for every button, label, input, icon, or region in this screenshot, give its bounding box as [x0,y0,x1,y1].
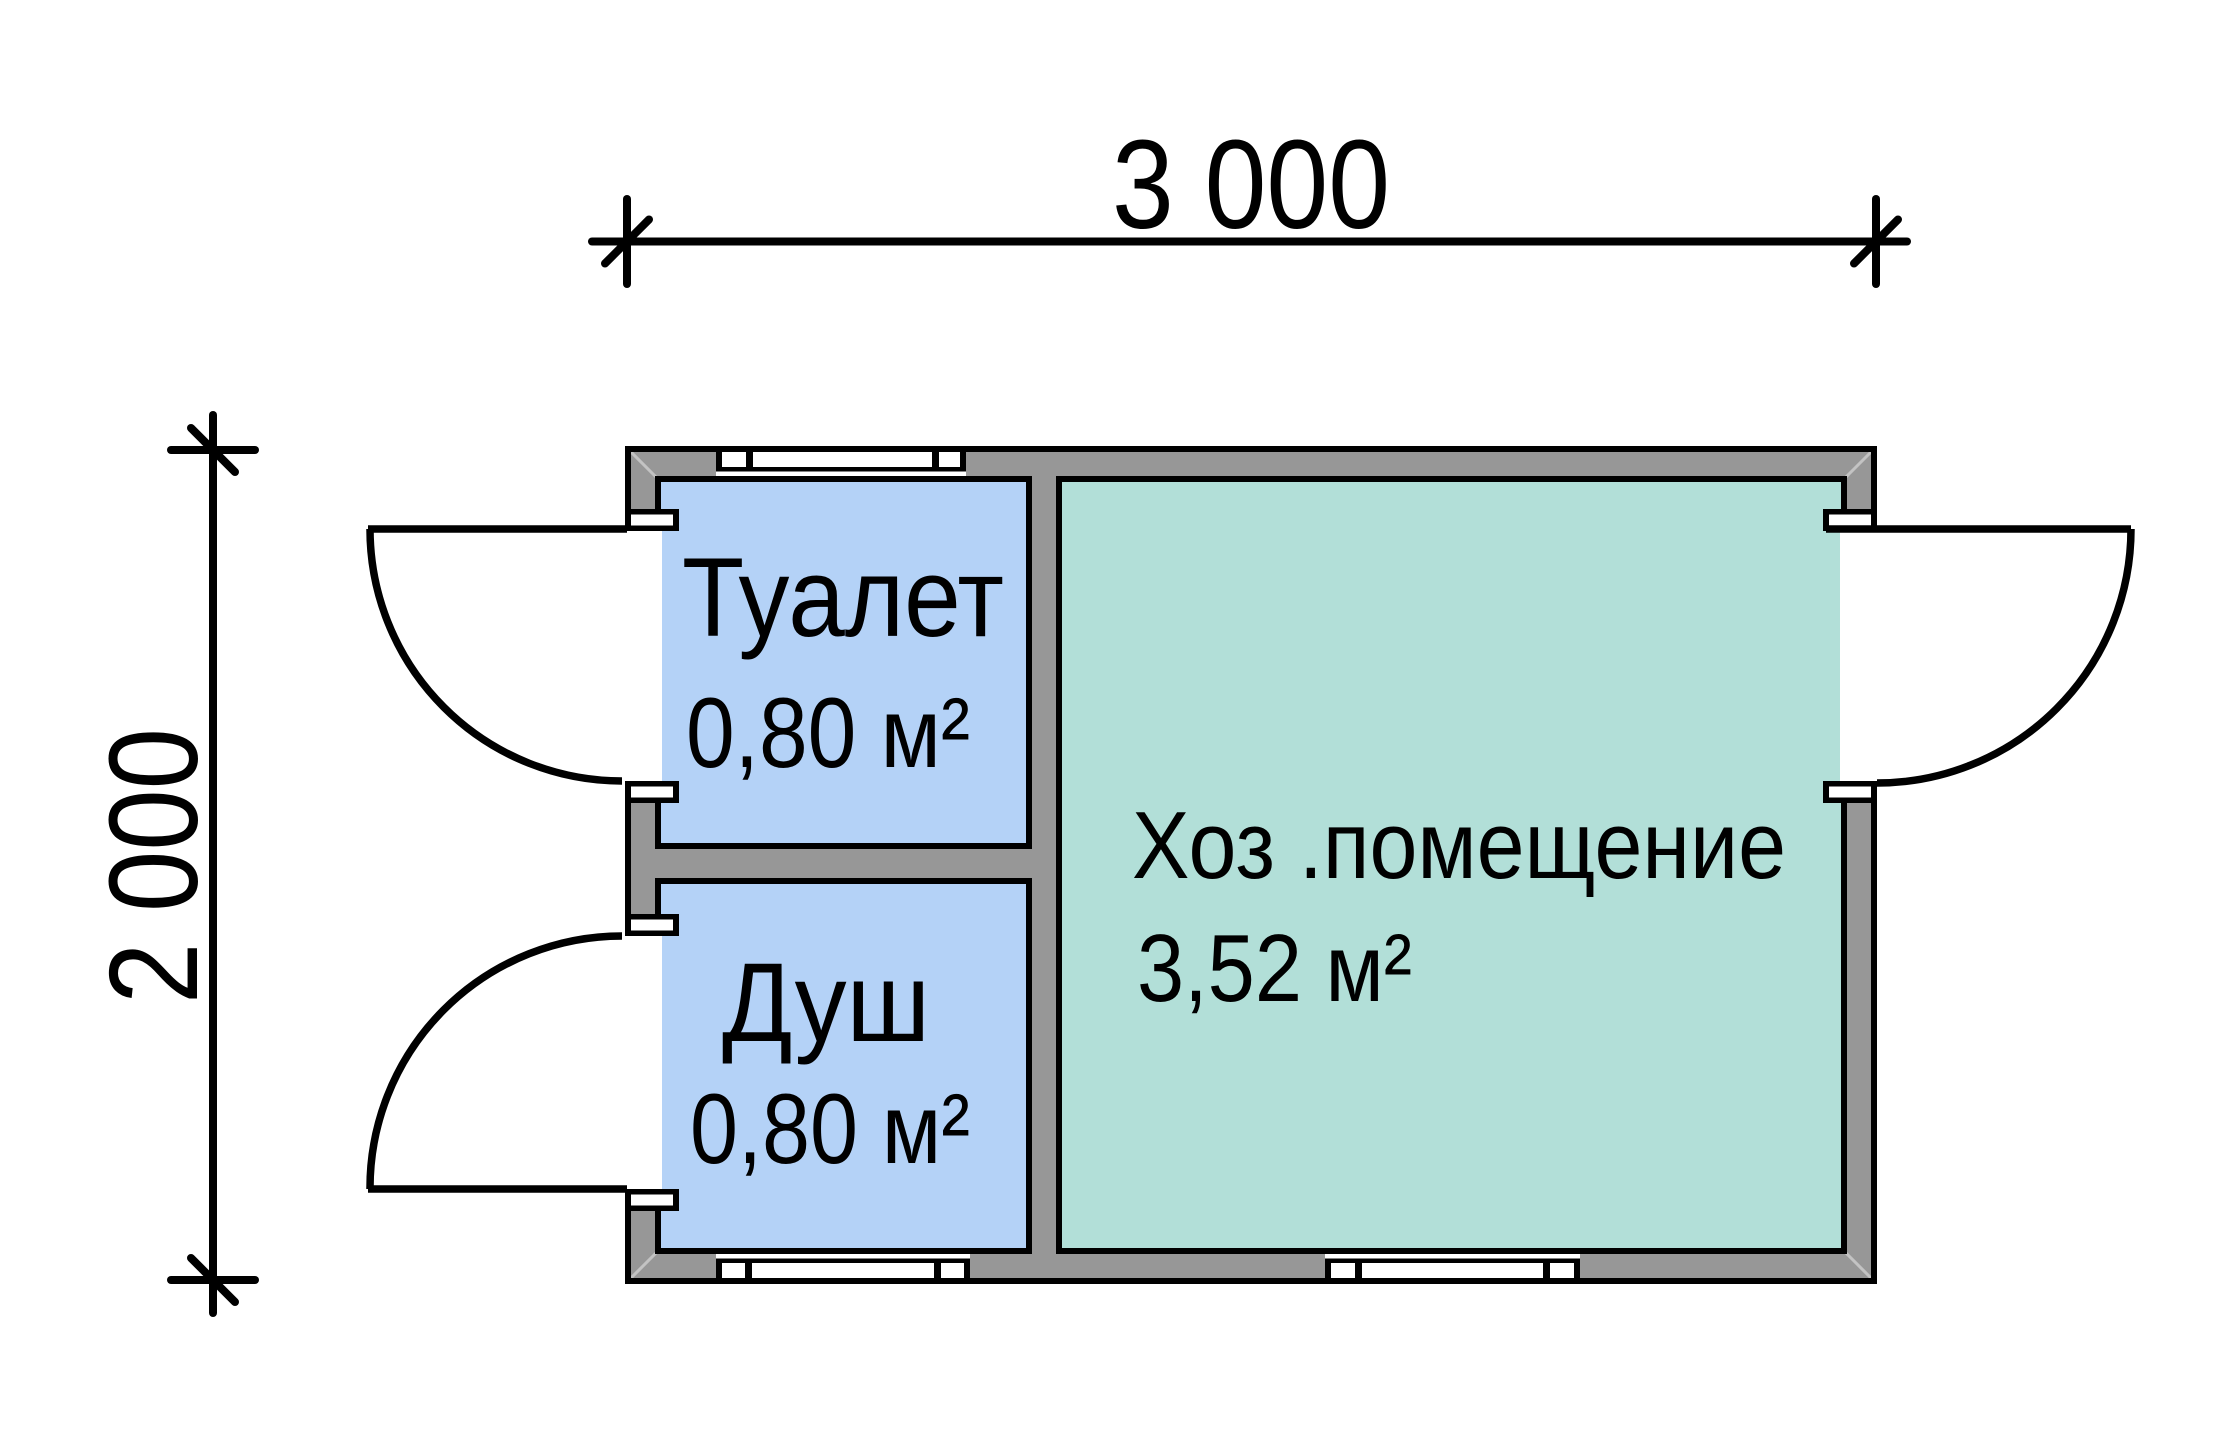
svg-text:Туалет: Туалет [682,535,1004,660]
svg-text:0,80 м²: 0,80 м² [686,677,970,788]
svg-text:0,80 м²: 0,80 м² [690,1073,970,1184]
svg-text:2 000: 2 000 [83,728,224,1004]
svg-text:Душ: Душ [722,940,930,1065]
svg-text:3 000: 3 000 [1112,114,1390,255]
svg-text:3,52 м²: 3,52 м² [1137,915,1412,1022]
svg-text:Хоз .помещение: Хоз .помещение [1132,792,1786,899]
